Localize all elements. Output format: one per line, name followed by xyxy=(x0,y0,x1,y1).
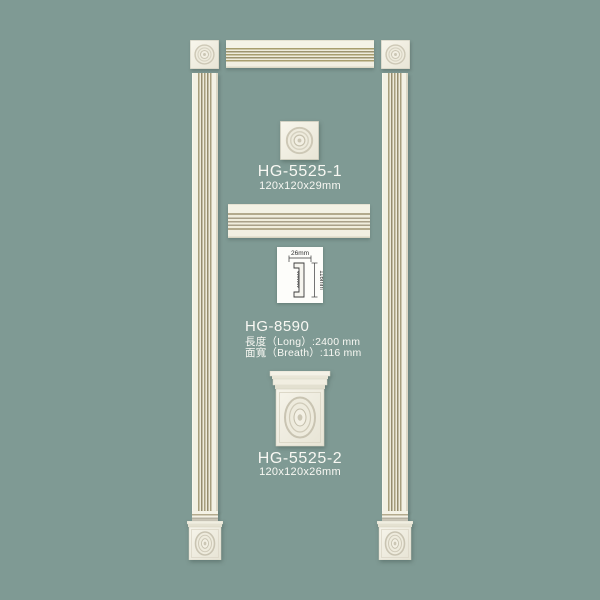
plinth-block-drawing xyxy=(377,521,413,560)
rosette-icon xyxy=(280,121,319,160)
catalog-image: HG-5525-1 120x120x29mm 26mm 116mm HG-859… xyxy=(0,0,600,600)
product-length-moulding: 長度（Long）:2400 mm xyxy=(245,337,361,348)
plinth-block-bottom-left xyxy=(187,521,223,560)
plinth-block-sample xyxy=(269,371,331,447)
moulding-spec-block: HG-8590 長度（Long）:2400 mm 面寬（Breath）:116 … xyxy=(245,318,361,358)
product-size-plinth-block: 120x120x26mm xyxy=(210,466,390,478)
diagram-width-label: 26mm xyxy=(291,250,309,257)
pilaster-base-band-left xyxy=(192,511,218,521)
pilaster-base-band-right xyxy=(382,511,408,521)
flat-moulding-sample xyxy=(228,204,370,238)
moulding-profile-shape xyxy=(294,263,304,297)
top-rail-moulding xyxy=(226,40,374,68)
plinth-block-drawing xyxy=(269,371,331,447)
profile-cross-section-diagram: 26mm 116mm xyxy=(277,247,323,303)
rosette-corner-block-top-left xyxy=(190,40,219,69)
fluted-pilaster-right xyxy=(382,73,408,511)
diagram-height-label: 116mm xyxy=(318,270,323,290)
fluted-pilaster-left xyxy=(192,73,218,511)
profile-diagram-drawing: 26mm 116mm xyxy=(277,247,323,303)
rosette-icon xyxy=(381,40,410,69)
product-breadth-moulding: 面寬（Breath）:116 mm xyxy=(245,348,361,359)
rosette-corner-block-top-right xyxy=(381,40,410,69)
product-size-corner-block: 120x120x29mm xyxy=(210,180,390,192)
plinth-block-bottom-right xyxy=(377,521,413,560)
product-code-corner-block: HG-5525-1 xyxy=(210,163,390,181)
rosette-icon xyxy=(190,40,219,69)
plinth-block-drawing xyxy=(187,521,223,560)
rosette-block-sample xyxy=(280,121,319,160)
product-code-moulding: HG-8590 xyxy=(245,318,361,335)
height-dimension-line xyxy=(312,263,318,297)
